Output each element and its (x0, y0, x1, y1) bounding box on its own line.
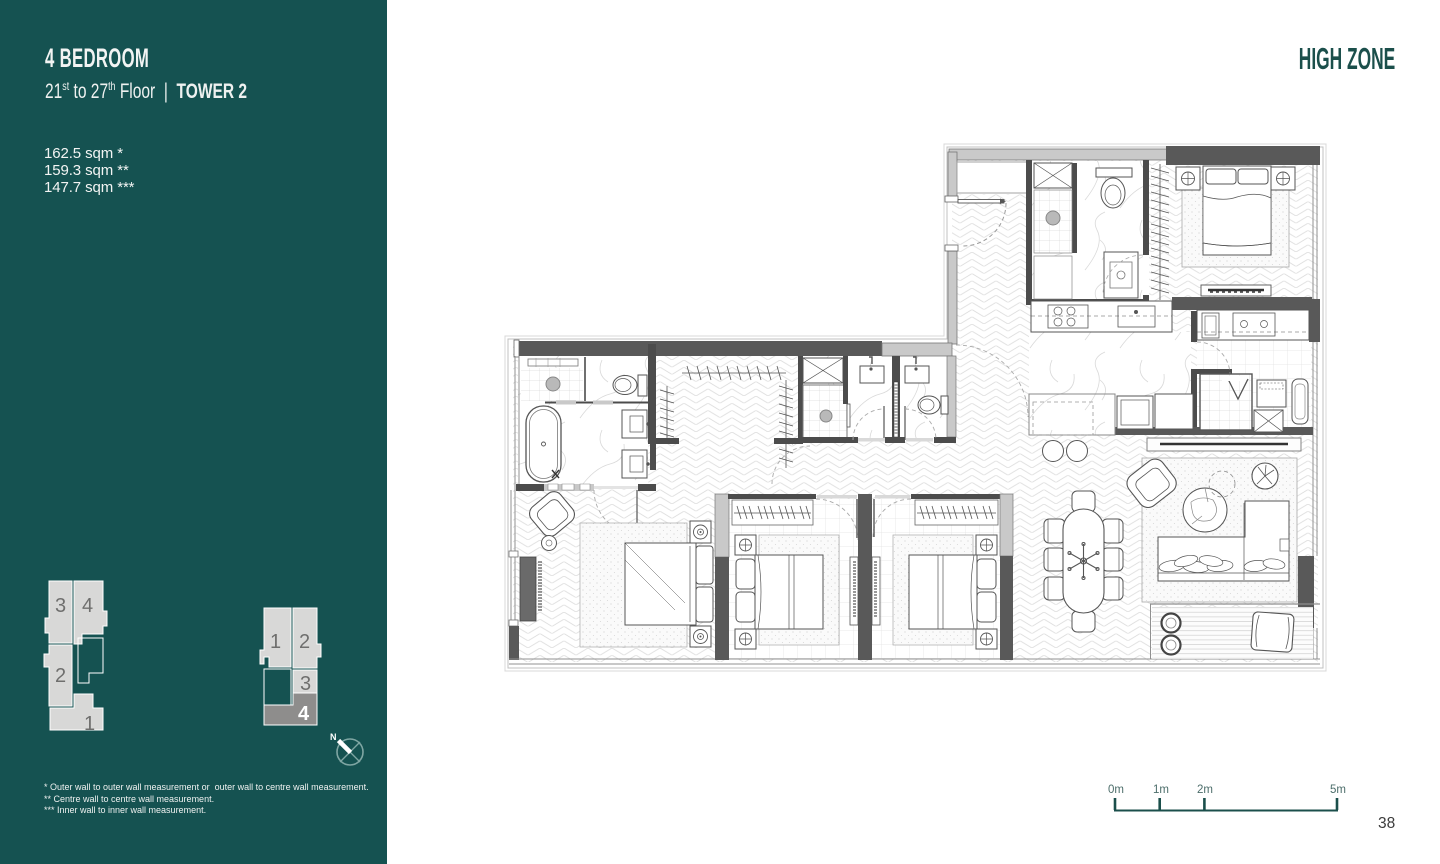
svg-text:1: 1 (270, 631, 281, 653)
svg-text:2: 2 (55, 665, 66, 687)
svg-text:0m: 0m (1108, 784, 1124, 796)
svg-text:1m: 1m (1153, 784, 1169, 796)
svg-text:3: 3 (55, 595, 66, 617)
svg-text:3: 3 (300, 673, 311, 695)
svg-text:1: 1 (84, 713, 95, 735)
svg-text:4: 4 (82, 595, 93, 617)
svg-text:5m: 5m (1330, 784, 1346, 796)
svg-text:4: 4 (298, 703, 310, 725)
svg-text:2: 2 (299, 631, 310, 653)
svg-text:N: N (330, 732, 337, 742)
svg-text:2m: 2m (1197, 784, 1213, 796)
